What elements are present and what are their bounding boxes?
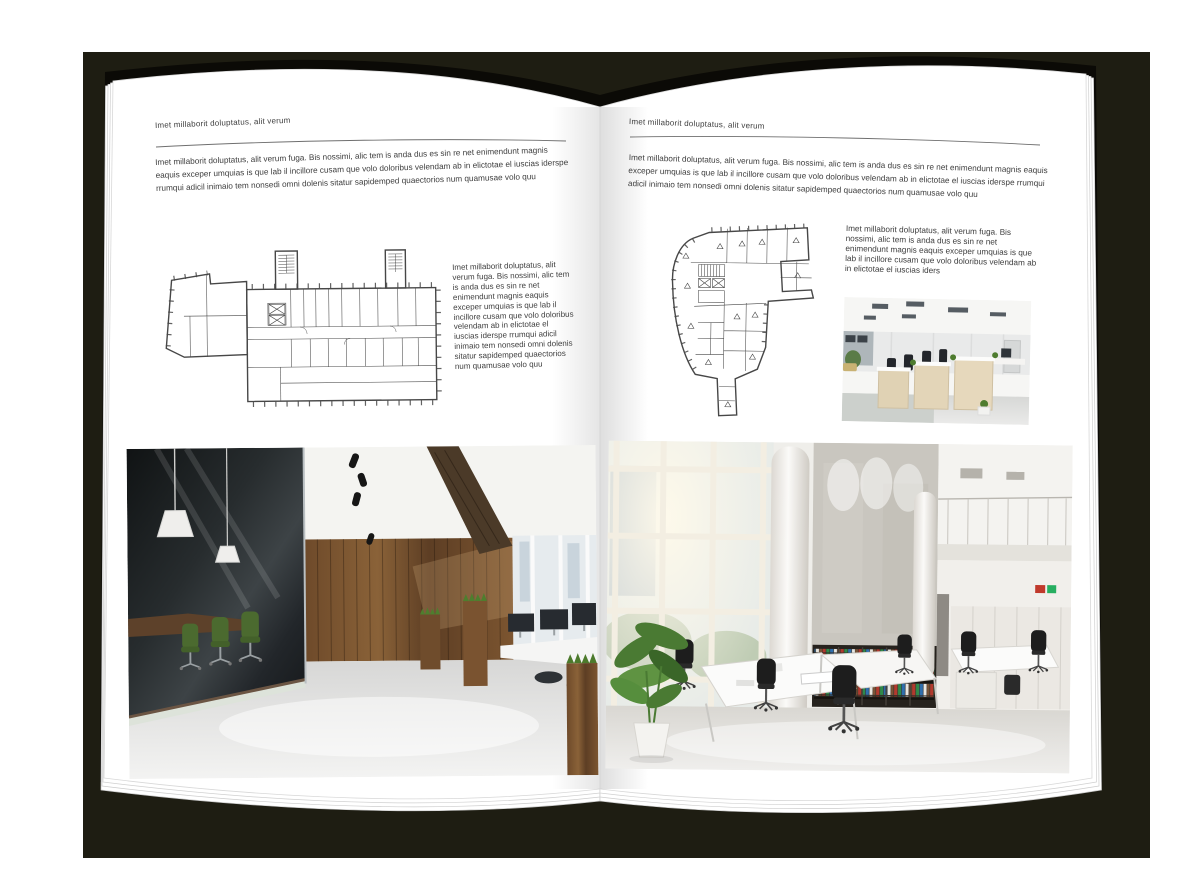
magazine-mockup: Imet millaborit doluptatus, alit verum I…: [0, 0, 1200, 891]
first-aid-sign-icon: [1035, 585, 1045, 593]
office-photo-cubicles-small: [842, 297, 1032, 425]
exit-sign-icon: [1047, 585, 1056, 593]
office-photo-atrium: [605, 441, 1072, 774]
left-floor-plan-drawing: [149, 223, 449, 418]
office-photo-dark-wood: [127, 445, 599, 779]
left-caption-text: Imet millaborit doluptatus, alit verum f…: [452, 260, 576, 372]
right-caption-text: Imet millaborit doluptatus, alit verum f…: [845, 224, 1040, 278]
right-floor-plan-drawing: [645, 218, 846, 425]
right-header-rule: [629, 134, 1041, 148]
